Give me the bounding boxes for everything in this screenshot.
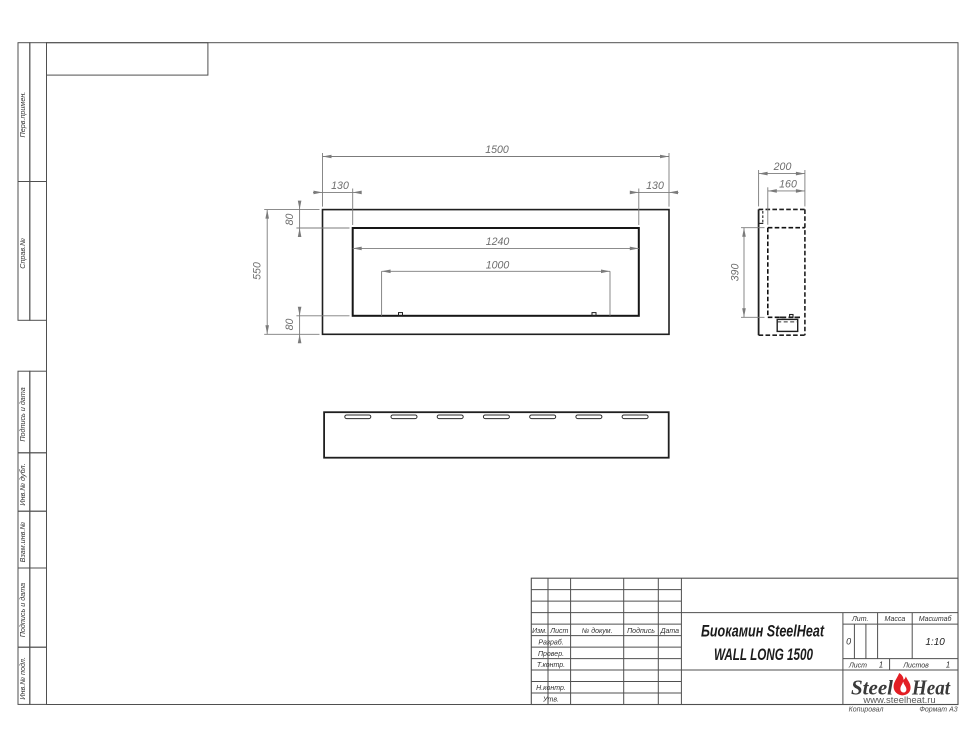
svg-text:Перв.примен.: Перв.примен. bbox=[18, 92, 27, 138]
svg-text:WALL LONG 1500: WALL LONG 1500 bbox=[714, 645, 813, 664]
svg-text:Н.контр.: Н.контр. bbox=[536, 685, 566, 692]
svg-text:550: 550 bbox=[252, 262, 264, 280]
svg-text:160: 160 bbox=[779, 179, 797, 191]
svg-text:1000: 1000 bbox=[486, 259, 510, 271]
svg-text:1240: 1240 bbox=[486, 236, 510, 248]
svg-text:1: 1 bbox=[879, 661, 883, 670]
svg-text:Инв.№ подл.: Инв.№ подл. bbox=[18, 657, 27, 700]
svg-text:Масштаб: Масштаб bbox=[919, 615, 953, 623]
svg-text:130: 130 bbox=[646, 180, 664, 192]
svg-text:Подпись и дата: Подпись и дата bbox=[18, 387, 27, 441]
svg-text:Разраб.: Разраб. bbox=[538, 638, 563, 646]
svg-text:0: 0 bbox=[846, 637, 851, 647]
svg-text:Инв.№ дубл.: Инв.№ дубл. bbox=[18, 463, 27, 505]
svg-text:200: 200 bbox=[773, 161, 792, 173]
svg-text:Т.контр.: Т.контр. bbox=[537, 662, 565, 669]
svg-text:Подпись: Подпись bbox=[627, 627, 655, 635]
svg-text:Масса: Масса bbox=[885, 616, 906, 623]
svg-text:№ докум.: № докум. bbox=[582, 627, 613, 635]
svg-text:130: 130 bbox=[331, 180, 349, 192]
svg-text:Провер.: Провер. bbox=[538, 651, 564, 658]
svg-text:Справ.№: Справ.№ bbox=[18, 238, 27, 269]
svg-text:1: 1 bbox=[946, 661, 950, 670]
svg-text:Формат А3: Формат А3 bbox=[919, 707, 957, 714]
svg-text:80: 80 bbox=[284, 214, 296, 226]
svg-text:Копировал: Копировал bbox=[849, 707, 884, 714]
svg-text:Подпись и дата: Подпись и дата bbox=[18, 583, 27, 637]
svg-text:Утв.: Утв. bbox=[542, 697, 559, 704]
svg-text:Лит.: Лит. bbox=[851, 616, 868, 623]
svg-text:Лист: Лист bbox=[848, 663, 867, 670]
svg-text:www.steelheat.ru: www.steelheat.ru bbox=[862, 695, 935, 706]
svg-text:Дата: Дата bbox=[660, 628, 680, 635]
svg-text:Взам.инв.№: Взам.инв.№ bbox=[18, 522, 27, 563]
svg-text:Листов: Листов bbox=[902, 663, 929, 670]
svg-text:390: 390 bbox=[730, 264, 742, 282]
svg-text:Изм.: Изм. bbox=[532, 628, 547, 635]
svg-text:Лист: Лист bbox=[549, 628, 568, 635]
svg-text:1:10: 1:10 bbox=[925, 637, 945, 648]
svg-text:Биокамин SteelHeat: Биокамин SteelHeat bbox=[701, 621, 825, 640]
svg-text:80: 80 bbox=[284, 319, 296, 331]
svg-text:1500: 1500 bbox=[485, 144, 509, 156]
